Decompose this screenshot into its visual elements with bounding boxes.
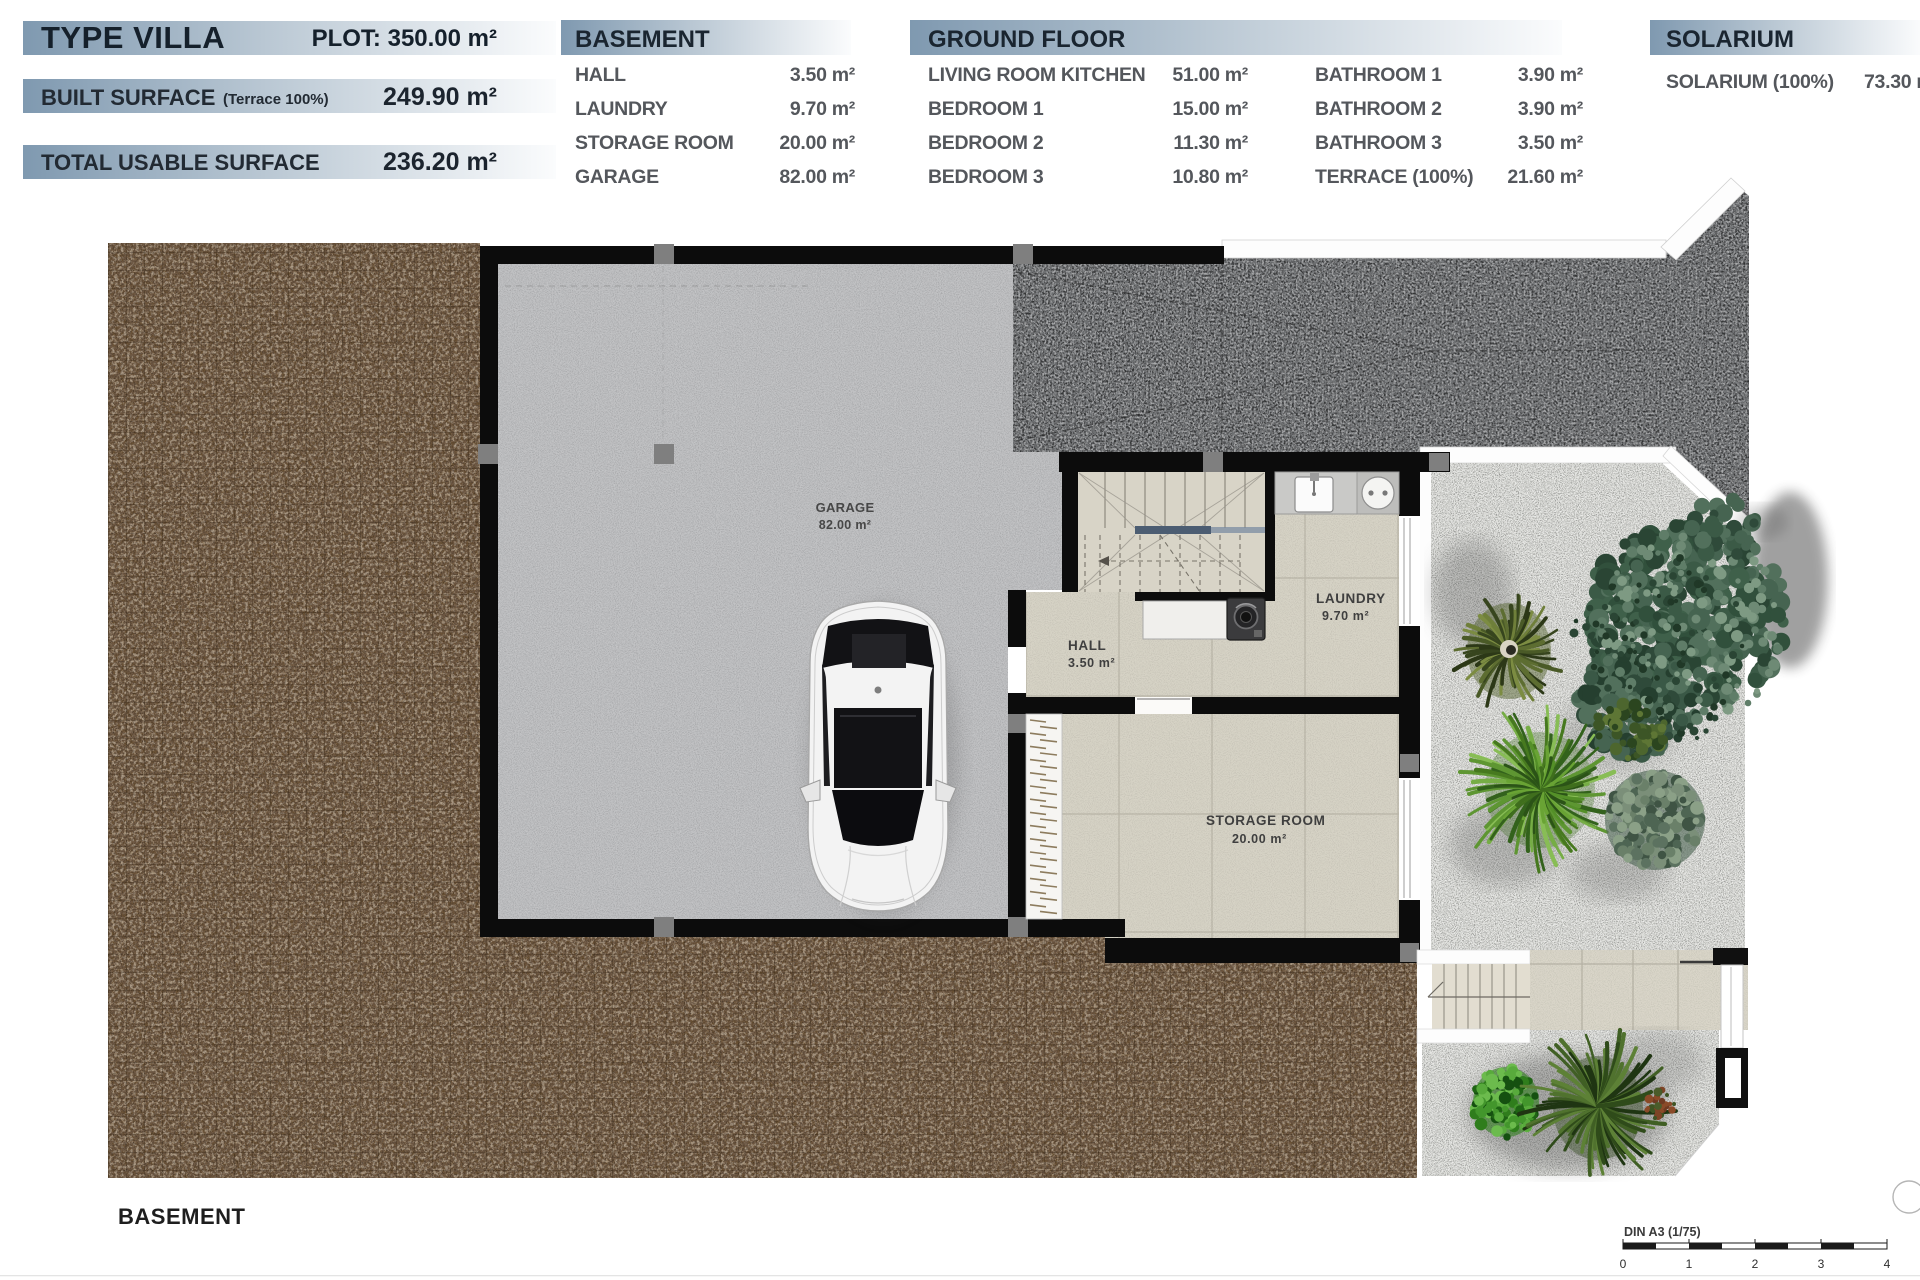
svg-text:TERRACE (100%): TERRACE (100%)	[1315, 166, 1473, 188]
svg-text:LAUNDRY: LAUNDRY	[1316, 591, 1386, 606]
svg-text:LAUNDRY: LAUNDRY	[575, 98, 668, 120]
svg-text:SOLARIUM: SOLARIUM	[1666, 26, 1794, 53]
svg-text:20.00 m²: 20.00 m²	[779, 132, 855, 154]
svg-text:DIN A3 (1/75): DIN A3 (1/75)	[1624, 1225, 1701, 1239]
svg-text:SOLARIUM (100%): SOLARIUM (100%)	[1666, 71, 1834, 93]
svg-text:1: 1	[1686, 1257, 1693, 1271]
svg-text:51.00 m²: 51.00 m²	[1172, 64, 1248, 86]
svg-text:82.00 m²: 82.00 m²	[779, 166, 855, 188]
svg-text:BASEMENT: BASEMENT	[118, 1204, 246, 1229]
svg-text:BEDROOM 3: BEDROOM 3	[928, 166, 1044, 188]
svg-text:9.70 m²: 9.70 m²	[790, 98, 856, 120]
svg-text:BEDROOM 1: BEDROOM 1	[928, 98, 1044, 120]
svg-text:3.90 m²: 3.90 m²	[1518, 98, 1584, 120]
svg-text:4: 4	[1884, 1257, 1891, 1271]
svg-text:0: 0	[1620, 1257, 1627, 1271]
svg-text:STORAGE ROOM: STORAGE ROOM	[1206, 813, 1325, 828]
svg-text:GROUND FLOOR: GROUND FLOOR	[928, 26, 1125, 53]
svg-text:15.00 m²: 15.00 m²	[1172, 98, 1248, 120]
svg-text:PLOT: 350.00 m²: PLOT: 350.00 m²	[312, 25, 497, 52]
svg-text:BATHROOM 3: BATHROOM 3	[1315, 132, 1442, 154]
svg-text:BATHROOM 2: BATHROOM 2	[1315, 98, 1442, 120]
svg-text:TOTAL USABLE SURFACE: TOTAL USABLE SURFACE	[41, 150, 320, 175]
svg-text:20.00 m²: 20.00 m²	[1232, 832, 1287, 846]
svg-text:236.20 m²: 236.20 m²	[383, 148, 497, 176]
svg-text:21.60 m²: 21.60 m²	[1507, 166, 1583, 188]
svg-text:10.80 m²: 10.80 m²	[1172, 166, 1248, 188]
svg-text:HALL: HALL	[575, 64, 626, 86]
svg-text:HALL: HALL	[1068, 638, 1106, 653]
svg-text:11.30 m²: 11.30 m²	[1173, 132, 1248, 154]
svg-text:3.50 m²: 3.50 m²	[1518, 132, 1584, 154]
svg-text:3.50 m²: 3.50 m²	[1068, 656, 1115, 670]
svg-text:STORAGE ROOM: STORAGE ROOM	[575, 132, 734, 154]
svg-text:BASEMENT: BASEMENT	[575, 26, 710, 53]
svg-text:3.50 m²: 3.50 m²	[790, 64, 856, 86]
svg-text:BEDROOM 2: BEDROOM 2	[928, 132, 1044, 154]
svg-text:GARAGE: GARAGE	[575, 166, 659, 188]
svg-text:BATHROOM 1: BATHROOM 1	[1315, 64, 1442, 86]
svg-text:9.70 m²: 9.70 m²	[1322, 609, 1369, 623]
svg-text:3.90 m²: 3.90 m²	[1518, 64, 1584, 86]
svg-text:2: 2	[1752, 1257, 1759, 1271]
svg-text:82.00 m²: 82.00 m²	[819, 518, 871, 532]
svg-text:BUILT SURFACE: BUILT SURFACE	[41, 85, 215, 110]
svg-text:TYPE VILLA: TYPE VILLA	[41, 20, 225, 55]
svg-text:LIVING ROOM KITCHEN: LIVING ROOM KITCHEN	[928, 64, 1145, 86]
svg-text:3: 3	[1818, 1257, 1825, 1271]
svg-text:249.90 m²: 249.90 m²	[383, 83, 497, 111]
svg-text:73.30 m²: 73.30 m²	[1864, 71, 1920, 93]
svg-text:(Terrace 100%): (Terrace 100%)	[223, 91, 329, 108]
svg-text:GARAGE: GARAGE	[816, 500, 875, 515]
